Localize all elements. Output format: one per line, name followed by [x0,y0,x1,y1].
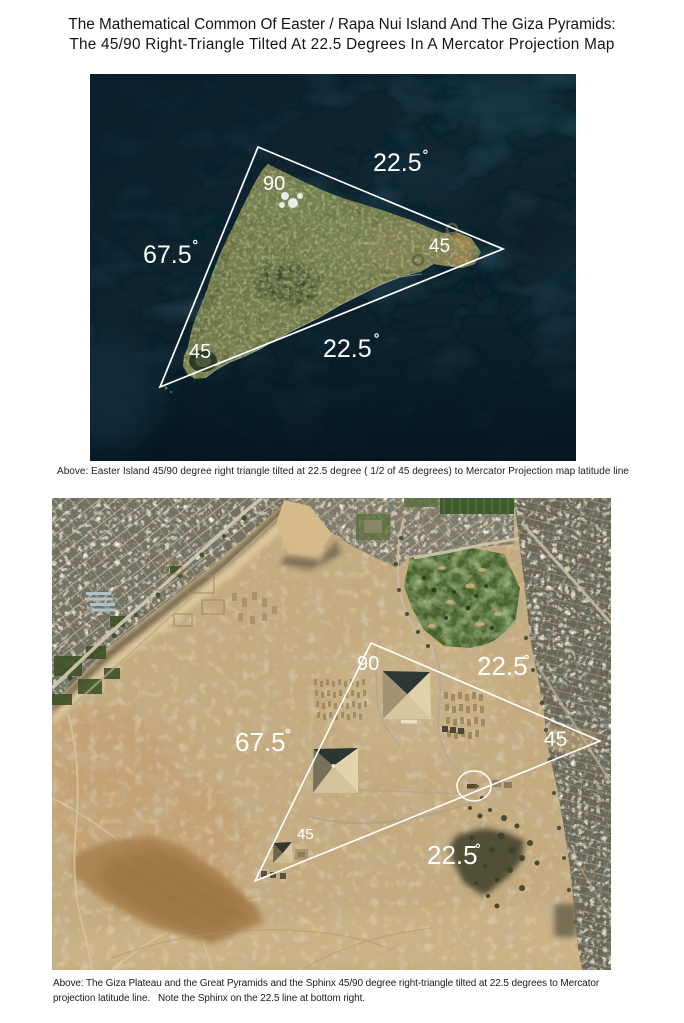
svg-text:22.5: 22.5 [427,840,478,870]
svg-text:22.5: 22.5 [373,149,422,177]
svg-text:90: 90 [357,653,379,675]
svg-text:90: 90 [263,173,285,195]
svg-text:45: 45 [297,826,314,843]
svg-text:67.5: 67.5 [235,727,286,757]
svg-text:22.5: 22.5 [323,335,372,363]
svg-text:45: 45 [189,341,211,363]
svg-text:22.5: 22.5 [477,651,528,681]
svg-text:67.5: 67.5 [143,241,192,269]
svg-text:45: 45 [544,728,567,751]
svg-text:45: 45 [429,236,450,257]
